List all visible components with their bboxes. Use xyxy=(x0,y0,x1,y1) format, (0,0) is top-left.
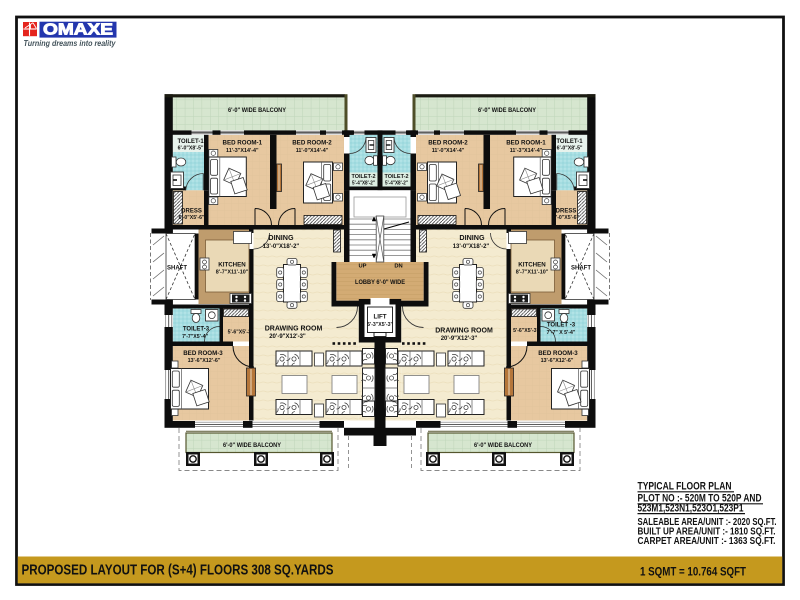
svg-text:5'-4"X8'-2": 5'-4"X8'-2" xyxy=(352,181,375,187)
svg-text:6'-0"X5'-6": 6'-0"X5'-6" xyxy=(553,215,579,221)
svg-text:BED ROOM-3: BED ROOM-3 xyxy=(183,350,223,357)
svg-text:6'-0" WIDE BALCONY: 6'-0" WIDE BALCONY xyxy=(228,107,287,114)
svg-text:20'-9"X12'-3": 20'-9"X12'-3" xyxy=(269,334,306,340)
svg-text:KITCHEN: KITCHEN xyxy=(518,262,546,269)
svg-text:8'-7"X11'-10": 8'-7"X11'-10" xyxy=(216,270,249,276)
svg-text:DINING: DINING xyxy=(459,233,485,242)
svg-text:20'-9"X12'-3": 20'-9"X12'-3" xyxy=(441,336,478,342)
svg-text:1 SQMT = 10.764 SQFT: 1 SQMT = 10.764 SQFT xyxy=(640,565,747,579)
svg-text:TOILET-1: TOILET-1 xyxy=(556,139,583,145)
svg-text:UP: UP xyxy=(358,264,366,270)
svg-text:8'-7"X11'-10": 8'-7"X11'-10" xyxy=(516,270,549,276)
svg-text:6'-0" WIDE BALCONY: 6'-0" WIDE BALCONY xyxy=(474,442,533,449)
svg-text:TYPICAL FLOOR PLAN: TYPICAL FLOOR PLAN xyxy=(638,481,732,493)
svg-text:DN: DN xyxy=(394,264,402,270)
svg-text:11'-0"X14'-4": 11'-0"X14'-4" xyxy=(432,148,465,154)
svg-text:OMAXE: OMAXE xyxy=(43,22,113,39)
svg-text:6'-0"X8'-5": 6'-0"X8'-5" xyxy=(557,145,583,151)
svg-text:6'-0" WIDE BALCONY: 6'-0" WIDE BALCONY xyxy=(478,107,537,114)
svg-text:5'-6"X5'-3": 5'-6"X5'-3" xyxy=(513,328,539,334)
svg-text:11'-3"X14'-4": 11'-3"X14'-4" xyxy=(226,148,259,154)
svg-text:Turning dreams into reality: Turning dreams into reality xyxy=(24,39,117,48)
svg-text:PROPOSED LAYOUT FOR (S+4) FLOO: PROPOSED LAYOUT FOR (S+4) FLOORS 308 SQ.… xyxy=(22,562,334,579)
svg-text:KITCHEN: KITCHEN xyxy=(218,262,246,269)
svg-text:TOILET-1: TOILET-1 xyxy=(177,139,204,145)
svg-text:CARPET AREA/UNIT :- 1363: CARPET AREA/UNIT :- 1363 SQ.FT. xyxy=(638,536,776,547)
svg-text:DRESS: DRESS xyxy=(556,208,577,214)
svg-text:DINING: DINING xyxy=(268,233,294,242)
svg-text:TOILET-3: TOILET-3 xyxy=(183,327,210,333)
svg-text:LOBBY 6'-0" WIDE: LOBBY 6'-0" WIDE xyxy=(355,279,406,286)
svg-text:DRESS: DRESS xyxy=(181,208,202,214)
svg-text:BED ROOM-1: BED ROOM-1 xyxy=(506,140,546,147)
svg-text:TOILET-2: TOILET-2 xyxy=(385,174,409,180)
svg-text:DRAWING ROOM: DRAWING ROOM xyxy=(435,328,493,335)
svg-text:13'-0"X18'-2": 13'-0"X18'-2" xyxy=(263,244,300,250)
svg-text:13'-6"X12'-6": 13'-6"X12'-6" xyxy=(541,358,574,364)
svg-text:6'-0"X8'-5": 6'-0"X8'-5" xyxy=(178,145,204,151)
svg-text:11'-0"X14'-4": 11'-0"X14'-4" xyxy=(296,148,329,154)
svg-text:BED ROOM-1: BED ROOM-1 xyxy=(223,140,263,147)
svg-text:13'-0"X18'-2": 13'-0"X18'-2" xyxy=(453,244,490,250)
svg-text:BED ROOM-3: BED ROOM-3 xyxy=(538,350,578,357)
svg-text:5'-4"X8'-2": 5'-4"X8'-2" xyxy=(385,181,408,187)
svg-text:6'-0"X5'-6": 6'-0"X5'-6" xyxy=(179,215,205,221)
svg-text:5'-3"X5'-3": 5'-3"X5'-3" xyxy=(367,322,393,328)
svg-text:13'-6"X12'-6": 13'-6"X12'-6" xyxy=(188,358,221,364)
svg-text:SHAFT: SHAFT xyxy=(167,266,187,272)
svg-text:7'-7" X 5'-4": 7'-7" X 5'-4" xyxy=(547,330,576,336)
svg-text:BED ROOM-2: BED ROOM-2 xyxy=(428,140,468,147)
svg-text:523M1,523N1,523O1,523P1: 523M1,523N1,523O1,523P1 xyxy=(638,503,744,515)
svg-text:SHAFT: SHAFT xyxy=(571,266,591,272)
svg-text:5'-6"X5'-3": 5'-6"X5'-3" xyxy=(228,330,254,336)
svg-text:LIFT: LIFT xyxy=(373,314,386,321)
svg-text:11'-3"X14'-4": 11'-3"X14'-4" xyxy=(510,148,543,154)
svg-text:TOILET -3: TOILET -3 xyxy=(547,323,576,329)
svg-text:7'-7"X5'-4": 7'-7"X5'-4" xyxy=(182,334,208,340)
svg-text:BED ROOM-2: BED ROOM-2 xyxy=(292,140,332,147)
svg-text:DRAWING ROOM: DRAWING ROOM xyxy=(265,326,323,333)
svg-text:TOILET-2: TOILET-2 xyxy=(352,174,376,180)
svg-text:6'-0" WIDE BALCONY: 6'-0" WIDE BALCONY xyxy=(223,442,282,449)
